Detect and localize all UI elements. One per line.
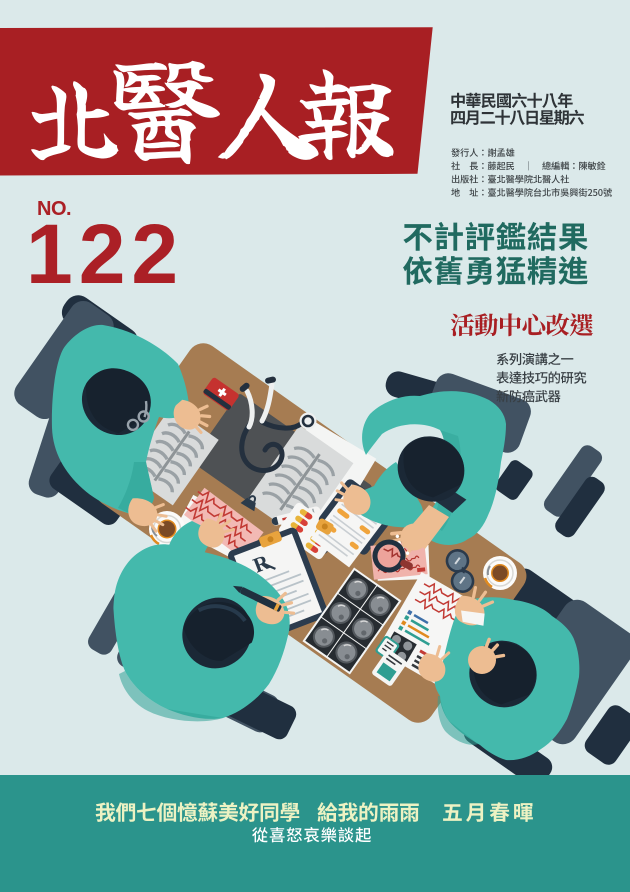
svg-text:122: 122 xyxy=(26,207,184,301)
